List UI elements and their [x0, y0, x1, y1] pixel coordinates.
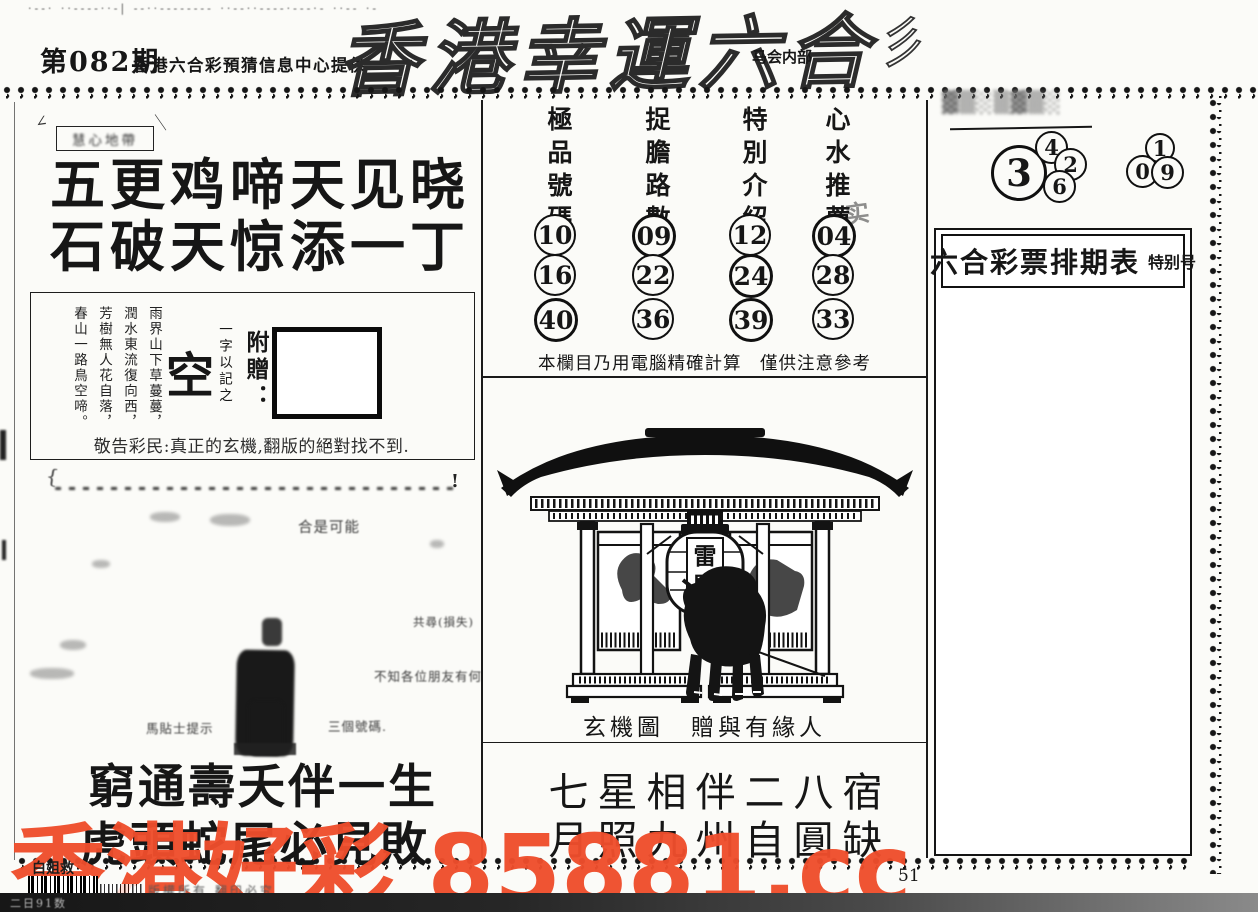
smudge-speck	[210, 514, 250, 526]
scan-edge-marks: 二日91数	[10, 895, 67, 911]
column-divider-right	[926, 100, 928, 858]
lace-border-right	[1208, 96, 1222, 874]
number-ball: 24	[729, 254, 773, 298]
scan-edge-mark	[0, 430, 6, 460]
scan-edge-bar	[0, 893, 1258, 912]
vertical-poem-line2: 潤水東流復向西，	[119, 306, 139, 438]
schedule-title: 六合彩票排期表	[930, 241, 1140, 281]
number-ball: 36	[632, 298, 674, 340]
tag-tick-left: ∠	[34, 111, 49, 131]
smudge-line	[55, 487, 455, 490]
smudge-brace: {	[44, 463, 60, 489]
number-ball: 39	[729, 298, 773, 342]
schedule-badge: 特别号	[1148, 249, 1196, 273]
number-ball: 28	[812, 254, 854, 296]
provider-label: 香港六合彩預猜信息中心提供	[133, 52, 367, 76]
smudge-speck	[30, 668, 74, 679]
tag-tick-right: ＼	[151, 111, 169, 134]
scan-edge-mark	[2, 540, 6, 560]
schedule-table-header: 六合彩票排期表 特别号	[941, 234, 1185, 288]
vertical-poem-line4: 春山一路鳥空啼。	[69, 306, 89, 438]
smudge-speck	[150, 512, 180, 522]
temple-gate-illustration: 雷 門	[495, 424, 915, 706]
vertical-poem-line3: 芳樹無人花自落，	[94, 306, 114, 438]
column-divider-left	[481, 100, 483, 858]
number-ball: 16	[534, 254, 576, 296]
schedule-table-box	[934, 228, 1192, 856]
smudge-fragment: 共尋(損失)	[413, 614, 474, 630]
ink-blob	[262, 618, 282, 646]
illustration-caption: 玄機圖 贈與有緣人	[483, 708, 926, 742]
horizontal-rule	[481, 742, 928, 743]
smudge-fragment: 不知各位朋友有何	[374, 666, 482, 685]
number-ball: 10	[534, 214, 576, 256]
number-ball: 40	[534, 298, 578, 342]
left-edge-rule	[14, 102, 15, 860]
gift-empty-box	[272, 327, 382, 419]
smudge-speck	[92, 560, 110, 568]
number-ball: 22	[632, 254, 674, 296]
number-ball: 04	[812, 214, 856, 258]
answer-character: 空	[166, 336, 214, 406]
smudge-fragment: 馬貼士提示	[146, 718, 214, 737]
number-ball: 9	[1151, 156, 1184, 189]
lottery-tip-sheet: ·‐‐· ··‐‐‐‐··‐| ‐‐··‐‐‐‐‐‐‐‐ ··‐‐··‐‐‐‐·…	[0, 0, 1258, 912]
horizontal-rule	[481, 376, 928, 378]
computer-calc-note: 本欄目乃用電腦精確計算 僅供注意參考	[483, 350, 926, 375]
lantern-char-top: 雷	[694, 543, 717, 570]
smudge-speck	[430, 540, 444, 548]
title-note: 马会内部	[752, 46, 812, 67]
number-ball: 6	[1043, 170, 1076, 203]
number-ball: 09	[632, 214, 676, 258]
headline-poem-line2: 石破天惊添一丁	[50, 202, 470, 282]
anti-piracy-notice: 敬告彩民:真正的玄機,翻版的絕對找不到.	[30, 432, 473, 457]
smudge-fragment: 合是可能	[298, 516, 360, 537]
smudge-speck	[60, 640, 86, 650]
smudge-exclamation: !	[451, 471, 459, 492]
smudged-heading: ▓▒░▒▓▒░	[942, 90, 1094, 124]
number-ball: 12	[729, 214, 771, 256]
number-ball: 33	[812, 298, 854, 340]
vertical-poem-line1: 雨界山下草蔓蔓，	[144, 306, 164, 438]
barcode-label: 白姐救	[32, 858, 74, 878]
answer-note: 一字以記之	[214, 322, 234, 427]
smudge-fragment: 三個號碼.	[328, 716, 387, 735]
smudged-heading-underline	[950, 126, 1092, 130]
gift-label: 附贈：	[238, 330, 272, 435]
